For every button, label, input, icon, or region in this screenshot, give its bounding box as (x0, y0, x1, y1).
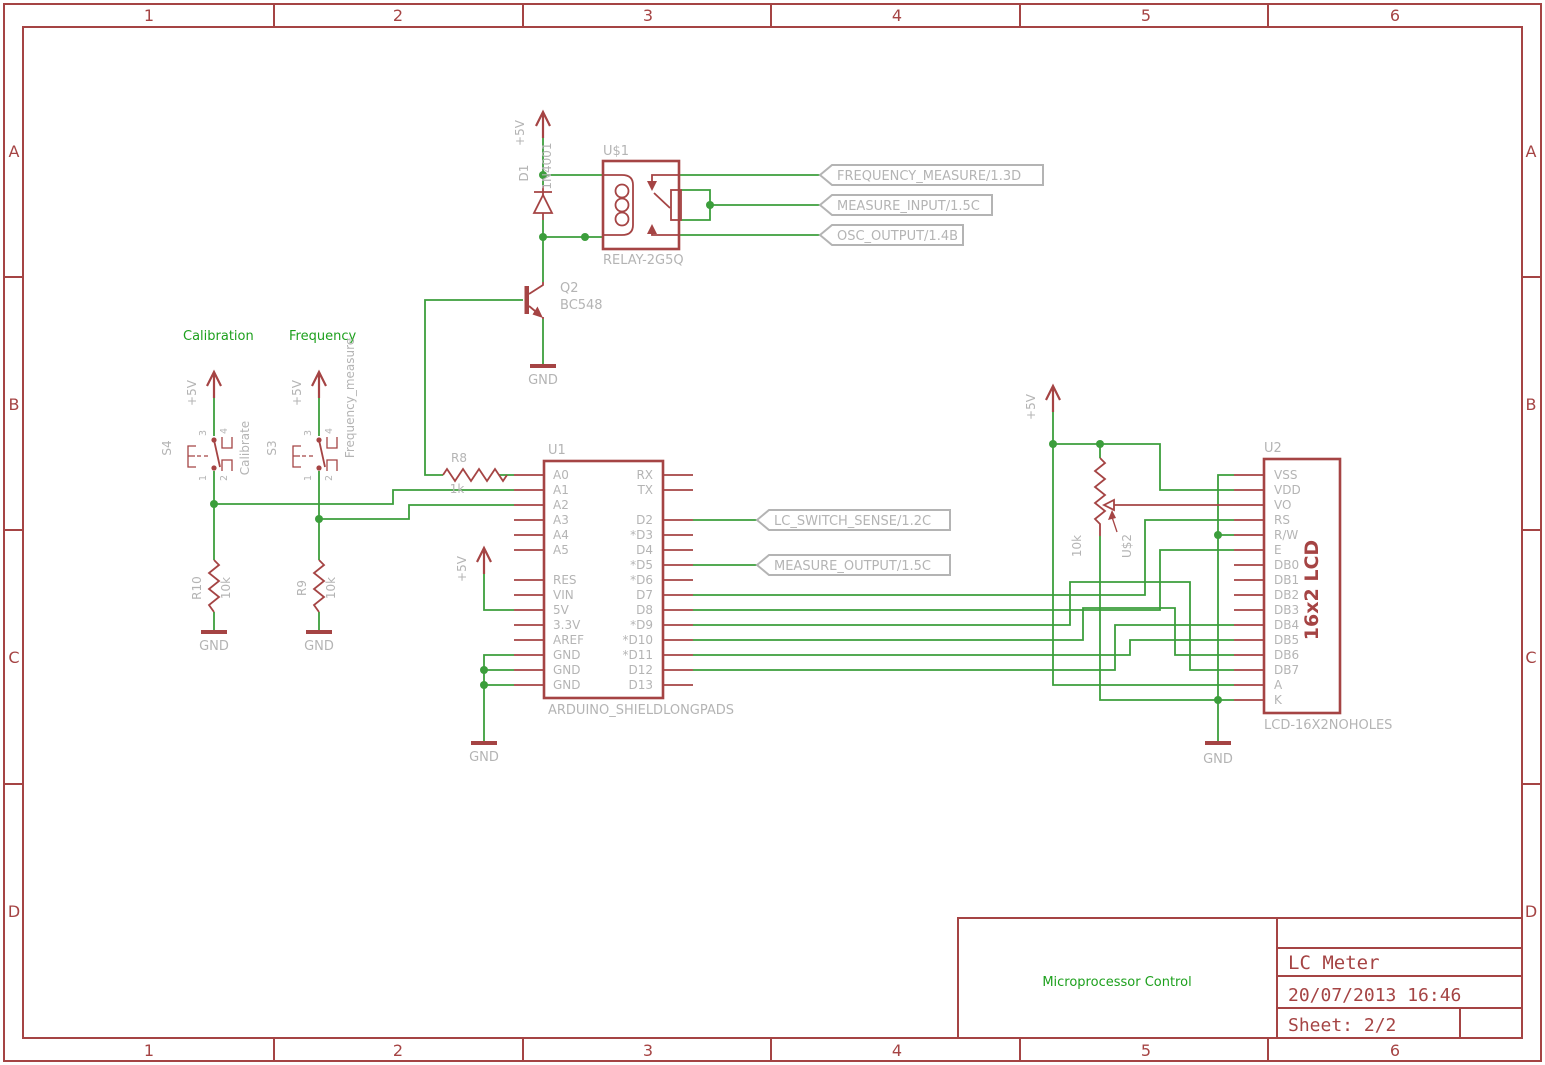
vcc-label: +5V (513, 119, 527, 146)
svg-text:VDD: VDD (1274, 483, 1301, 497)
svg-text:A4: A4 (553, 528, 569, 542)
relay-ref: U$1 (603, 144, 629, 159)
svg-text:VIN: VIN (553, 588, 574, 602)
net-label-lc-switch-sense: LC_SWITCH_SENSE/1.2C (774, 514, 931, 529)
svg-text:GND: GND (553, 648, 581, 662)
pin-stubs (514, 475, 1264, 700)
title-block-note: Microprocessor Control (1042, 975, 1191, 990)
resistor-r9: R9 10k (295, 560, 338, 612)
switch-s4: Calibration 3 4 1 2 S4 Calibrate (160, 329, 254, 481)
svg-text:3: 3 (643, 6, 653, 25)
svg-text:2: 2 (393, 6, 403, 25)
svg-text:4: 4 (892, 6, 902, 25)
svg-text:R10: R10 (190, 576, 204, 600)
net-d10-db6 (693, 608, 1234, 655)
svg-text:4: 4 (219, 428, 230, 434)
vcc-label: +5V (290, 379, 304, 406)
relay-value: RELAY-2G5Q (603, 253, 684, 268)
svg-text:DB1: DB1 (1274, 573, 1299, 587)
potentiometer-u2: 10k U$2 (1070, 458, 1234, 558)
svg-text:4: 4 (892, 1041, 902, 1060)
svg-text:R9: R9 (295, 580, 309, 596)
svg-text:K: K (1274, 693, 1283, 707)
net-d12-db4 (693, 625, 1234, 670)
svg-text:D12: D12 (628, 663, 653, 677)
svg-text:1: 1 (144, 6, 154, 25)
svg-text:*D9: *D9 (630, 618, 653, 632)
svg-text:E: E (1274, 543, 1282, 557)
svg-text:DB5: DB5 (1274, 633, 1299, 647)
svg-text:B: B (1526, 395, 1537, 414)
net-d11-db5 (693, 640, 1234, 655)
svg-text:R8: R8 (451, 451, 467, 465)
svg-text:2: 2 (393, 1041, 403, 1060)
svg-text:DB2: DB2 (1274, 588, 1299, 602)
svg-text:A2: A2 (553, 498, 569, 512)
svg-text:3.3V: 3.3V (553, 618, 581, 632)
svg-text:AREF: AREF (553, 633, 584, 647)
svg-text:C: C (1525, 648, 1536, 667)
svg-text:DB0: DB0 (1274, 558, 1299, 572)
diode-value: 1N4001 (540, 142, 554, 189)
switch-s3: Frequency 3 4 1 2 S3 Frequency_measure (265, 329, 357, 481)
svg-text:10k: 10k (1070, 535, 1084, 557)
title-block-sheet: Sheet: 2/2 (1288, 1015, 1396, 1036)
title-block-title: LC Meter (1288, 952, 1380, 974)
switch-ref: S4 (160, 440, 174, 455)
svg-text:A: A (1274, 678, 1283, 692)
svg-text:D: D (1525, 902, 1537, 921)
svg-text:6: 6 (1390, 6, 1400, 25)
svg-text:1: 1 (303, 475, 314, 481)
svg-text:A0: A0 (553, 468, 569, 482)
schematic-canvas: 1 2 3 4 5 6 1 2 3 4 5 6 A B C D A B C D (0, 0, 1545, 1065)
svg-text:3: 3 (303, 430, 314, 436)
drawing-frame: 1 2 3 4 5 6 1 2 3 4 5 6 A B C D A B C D (4, 4, 1541, 1061)
net-label-osc-output: OSC_OUTPUT/1.4B (837, 229, 958, 244)
net-text-calibration: Calibration (183, 329, 254, 344)
gnd-label: GND (199, 639, 229, 654)
net-label-measure-input: MEASURE_INPUT/1.5C (837, 199, 980, 214)
switch-value: Calibrate (238, 421, 252, 475)
svg-text:GND: GND (553, 678, 581, 692)
frame-row-letters: A B C D A B C D (8, 142, 1537, 921)
svg-text:5V: 5V (553, 603, 570, 617)
svg-text:DB3: DB3 (1274, 603, 1299, 617)
svg-text:DB4: DB4 (1274, 618, 1299, 632)
switch-value: Frequency_measure (343, 338, 357, 458)
svg-text:4: 4 (324, 428, 335, 434)
wires (214, 138, 1234, 741)
svg-text:*D10: *D10 (622, 633, 653, 647)
svg-text:B: B (9, 395, 20, 414)
arduino-ref: U1 (548, 443, 566, 458)
lcd-value: LCD-16X2NOHOLES (1264, 718, 1392, 733)
lcd-u2: U2 LCD-16X2NOHOLES 16x2 LCD VSS VDD VO R… (1264, 441, 1392, 733)
svg-text:R/W: R/W (1274, 528, 1298, 542)
switch-ref: S3 (265, 440, 279, 455)
svg-text:5: 5 (1141, 6, 1151, 25)
svg-text:D: D (8, 902, 20, 921)
svg-text:D13: D13 (628, 678, 653, 692)
arduino-u1: U1 ARDUINO_SHIELDLONGPADS A0 A1 A2 A3 A4… (544, 443, 734, 718)
gnd-label: GND (528, 373, 558, 388)
svg-text:3: 3 (198, 430, 209, 436)
vcc-label: +5V (185, 379, 199, 406)
net-label-frequency-measure: FREQUENCY_MEASURE/1.3D (837, 169, 1021, 184)
transistor-value: BC548 (560, 298, 603, 313)
net-d7-rs (693, 520, 1234, 595)
svg-text:*D3: *D3 (630, 528, 653, 542)
vcc-label: +5V (1024, 393, 1038, 420)
schematic-page: 1 2 3 4 5 6 1 2 3 4 5 6 A B C D A B C D (0, 0, 1545, 1065)
gnd-label: GND (304, 639, 334, 654)
net-label-measure-output: MEASURE_OUTPUT/1.5C (774, 559, 931, 574)
svg-text:RX: RX (636, 468, 653, 482)
net-gnd-arduino (484, 655, 514, 741)
gnd-label: GND (1203, 752, 1233, 767)
svg-text:A3: A3 (553, 513, 569, 527)
lcd-ref: U2 (1264, 441, 1282, 456)
svg-text:U$2: U$2 (1120, 534, 1134, 558)
svg-text:1k: 1k (450, 482, 465, 496)
svg-text:6: 6 (1390, 1041, 1400, 1060)
svg-text:10k: 10k (219, 577, 233, 599)
relay-u1: U$1 RELAY-2G5Q (603, 144, 684, 268)
net-pot-bottom-k (1100, 536, 1234, 700)
svg-text:*D5: *D5 (630, 558, 653, 572)
svg-text:10k: 10k (324, 577, 338, 599)
gnd-label: GND (469, 750, 499, 765)
transistor-ref: Q2 (560, 281, 579, 296)
svg-text:A: A (9, 142, 20, 161)
lcd-pin-labels: VSS VDD VO RS R/W E DB0 DB1 DB2 DB3 DB4 … (1274, 468, 1301, 707)
svg-text:TX: TX (636, 483, 653, 497)
svg-text:RS: RS (1274, 513, 1290, 527)
svg-text:GND: GND (553, 663, 581, 677)
diode-ref: D1 (517, 165, 531, 182)
diode-d1: D1 1N4001 (517, 142, 554, 220)
arduino-pin-labels-left: A0 A1 A2 A3 A4 A5 RES VIN 5V 3.3V AREF G… (553, 468, 584, 692)
vcc-labels: +5V +5V +5V +5V +5V (185, 119, 1038, 582)
svg-text:D4: D4 (636, 543, 653, 557)
svg-text:A: A (1526, 142, 1537, 161)
net-label-flags: FREQUENCY_MEASURE/1.3D MEASURE_INPUT/1.5… (757, 165, 1043, 575)
svg-text:DB7: DB7 (1274, 663, 1299, 677)
svg-text:1: 1 (144, 1041, 154, 1060)
transistor-q2: Q2 BC548 (525, 281, 603, 319)
svg-text:5: 5 (1141, 1041, 1151, 1060)
svg-text:VSS: VSS (1274, 468, 1297, 482)
title-block-date: 20/07/2013 16:46 (1288, 985, 1461, 1006)
svg-text:RES: RES (553, 573, 577, 587)
svg-text:D8: D8 (636, 603, 653, 617)
arduino-value: ARDUINO_SHIELDLONGPADS (548, 703, 734, 718)
resistor-r10: R10 10k (190, 560, 233, 612)
net-s4 (214, 398, 514, 630)
svg-text:3: 3 (643, 1041, 653, 1060)
lcd-inner-label: 16x2 LCD (1301, 540, 1323, 640)
net-5v-arduino (484, 574, 514, 610)
svg-text:DB6: DB6 (1274, 648, 1299, 662)
svg-text:VO: VO (1274, 498, 1291, 512)
svg-text:A1: A1 (553, 483, 569, 497)
svg-text:*D11: *D11 (622, 648, 653, 662)
svg-text:D7: D7 (636, 588, 653, 602)
svg-text:2: 2 (324, 475, 335, 481)
vcc-label: +5V (455, 555, 469, 582)
svg-text:2: 2 (219, 475, 230, 481)
net-measure-input (681, 190, 820, 220)
svg-text:D2: D2 (636, 513, 653, 527)
arduino-pin-labels-right: RX TX D2 *D3 D4 *D5 *D6 D7 D8 *D9 *D10 *… (622, 468, 653, 692)
svg-text:*D6: *D6 (630, 573, 653, 587)
svg-text:A5: A5 (553, 543, 569, 557)
svg-text:C: C (8, 648, 19, 667)
svg-text:1: 1 (198, 475, 209, 481)
title-block: Microprocessor Control LC Meter 20/07/20… (958, 918, 1522, 1038)
net-q2-base (425, 300, 523, 475)
